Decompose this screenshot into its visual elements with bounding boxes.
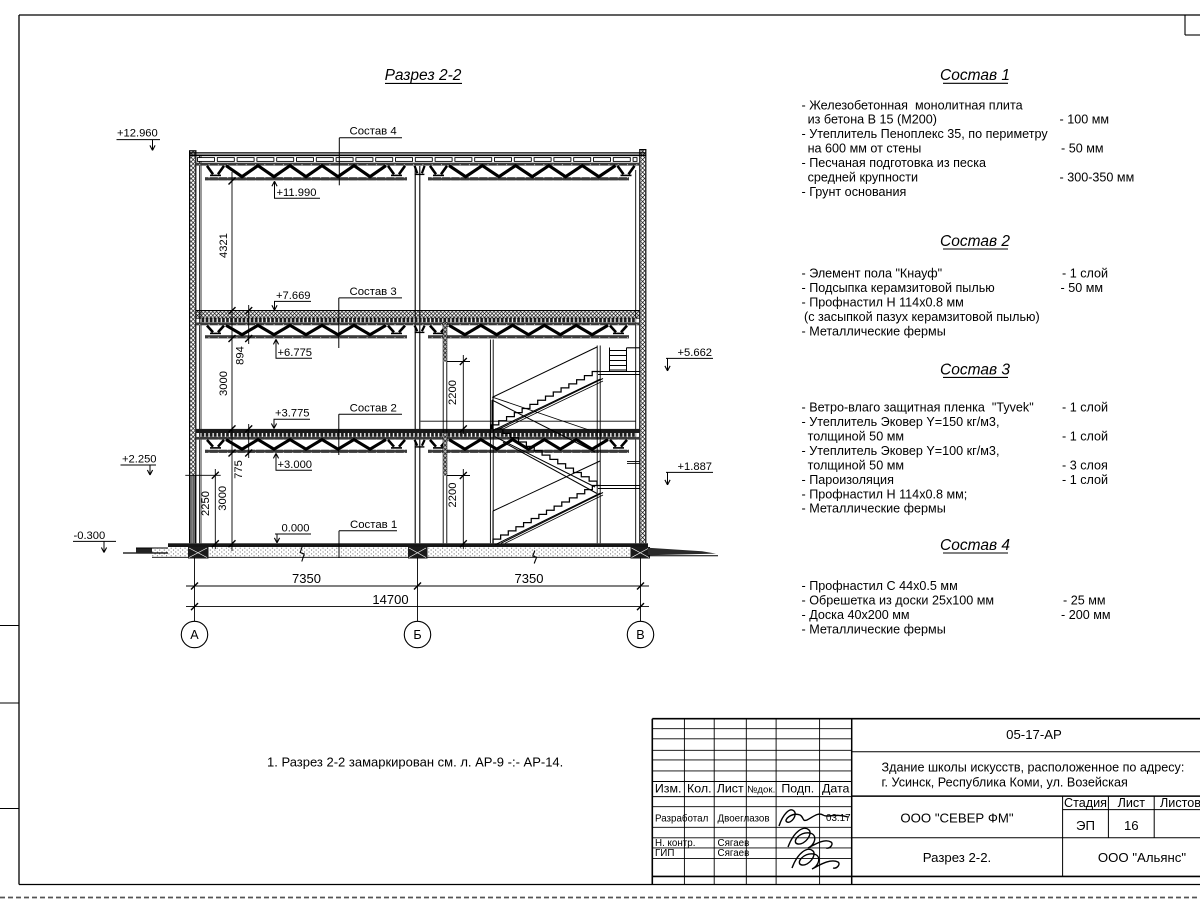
svg-text:- 50 мм: - 50 мм (1061, 281, 1104, 295)
svg-text:16: 16 (1124, 818, 1139, 833)
svg-text:14700: 14700 (372, 592, 408, 607)
svg-text:- Грунт основания: - Грунт основания (802, 185, 907, 199)
svg-text:+6.775: +6.775 (278, 347, 313, 359)
svg-text:- Профнастил С 44х0.5 мм: - Профнастил С 44х0.5 мм (802, 579, 958, 593)
svg-text:Стадия: Стадия (1064, 796, 1107, 810)
svg-text:- Песчаная подготовка из песка: - Песчаная подготовка из песка (802, 156, 987, 170)
svg-text:- 1 слой: - 1 слой (1062, 401, 1108, 415)
svg-text:- Металлические фермы: - Металлические фермы (802, 502, 946, 516)
svg-text:Разработал: Разработал (655, 813, 709, 824)
svg-text:толщиной 50 мм: толщиной 50 мм (808, 458, 904, 472)
svg-text:- 1 слой: - 1 слой (1062, 473, 1108, 487)
svg-text:- Железобетонная монолитная п: - Железобетонная монолитная плита (802, 98, 1023, 112)
svg-text:- Пароизоляция: - Пароизоляция (802, 473, 894, 487)
svg-text:894: 894 (235, 346, 247, 365)
svg-text:2200: 2200 (447, 380, 459, 405)
svg-text:Состав 4: Состав 4 (940, 537, 1010, 554)
svg-text:+11.990: +11.990 (277, 187, 317, 199)
svg-text:+12.960: +12.960 (117, 128, 158, 140)
svg-text:Двоеглазов: Двоеглазов (718, 813, 770, 824)
svg-text:Лист: Лист (717, 782, 744, 796)
svg-text:+1.887: +1.887 (678, 461, 713, 473)
svg-text:ООО "Альянс": ООО "Альянс" (1098, 850, 1186, 865)
svg-text:4321: 4321 (218, 233, 230, 258)
svg-text:+7.669: +7.669 (276, 290, 311, 302)
svg-text:Изм.: Изм. (655, 782, 682, 796)
svg-text:2250: 2250 (200, 491, 212, 516)
svg-text:- 300-350 мм: - 300-350 мм (1060, 171, 1135, 185)
svg-text:Сягаев: Сягаев (718, 838, 750, 849)
svg-text:Здание школы искусств, располо: Здание школы искусств, расположенное по … (882, 760, 1185, 774)
svg-text:- 200 мм: - 200 мм (1061, 608, 1111, 622)
svg-text:ГИП: ГИП (655, 848, 674, 859)
svg-text:(с засыпкой пазух керамзитовой: (с засыпкой пазух керамзитовой пылью) (804, 310, 1040, 324)
svg-text:- Утеплитель Эковер Y=150 кг/м: - Утеплитель Эковер Y=150 кг/м3, (802, 415, 1000, 429)
svg-text:- Профнастил Н 114х0.8 мм;: - Профнастил Н 114х0.8 мм; (802, 487, 968, 501)
svg-text:03.17: 03.17 (826, 813, 851, 824)
svg-text:- Ветро-влаго защитная пленка: - Ветро-влаго защитная пленка "Tyvek" (802, 401, 1034, 415)
svg-text:Состав 1: Состав 1 (350, 519, 397, 531)
svg-text:- Металлические фермы: - Металлические фермы (802, 324, 946, 338)
svg-text:- 1 слой: - 1 слой (1062, 430, 1108, 444)
svg-text:из бетона В 15 (М200): из бетона В 15 (М200) (808, 113, 937, 127)
svg-text:- Профнастил Н 114х0.8 мм: - Профнастил Н 114х0.8 мм (802, 296, 964, 310)
svg-text:на 600 мм от стены: на 600 мм от стены (808, 142, 922, 156)
svg-text:ЭП: ЭП (1076, 818, 1095, 833)
svg-text:+3.775: +3.775 (275, 407, 310, 419)
svg-text:- 25 мм: - 25 мм (1063, 593, 1106, 607)
svg-text:- 3 слоя: - 3 слоя (1062, 458, 1108, 472)
svg-text:- 50 мм: - 50 мм (1061, 142, 1104, 156)
svg-text:- Подсыпка керамзитовой пылью: - Подсыпка керамзитовой пылью (802, 281, 995, 295)
svg-text:- 1 слой: - 1 слой (1062, 267, 1108, 281)
svg-text:Б: Б (413, 628, 421, 642)
svg-text:- Доска 40х200 мм: - Доска 40х200 мм (802, 608, 910, 622)
svg-text:3000: 3000 (217, 486, 229, 511)
svg-text:Состав 3: Состав 3 (940, 361, 1010, 378)
svg-text:- Металлические фермы: - Металлические фермы (802, 622, 946, 636)
svg-text:3000: 3000 (218, 371, 230, 396)
svg-text:Разрез 2-2.: Разрез 2-2. (923, 850, 991, 865)
svg-text:Состав 2: Состав 2 (350, 403, 397, 415)
svg-text:В: В (636, 628, 644, 642)
svg-text:Дата: Дата (822, 782, 850, 796)
svg-text:А: А (190, 628, 199, 642)
svg-text:- 100 мм: - 100 мм (1060, 113, 1110, 127)
svg-text:- Элемент пола "Кнауф": - Элемент пола "Кнауф" (802, 267, 943, 281)
svg-text:7350: 7350 (292, 571, 321, 586)
svg-text:Листов: Листов (1160, 796, 1200, 810)
svg-text:Сягаев: Сягаев (718, 848, 750, 859)
svg-text:ООО "СЕВЕР ФМ": ООО "СЕВЕР ФМ" (900, 810, 1014, 825)
svg-text:1. Разрез 2-2 замаркирован см.: 1. Разрез 2-2 замаркирован см. л. АР-9 -… (267, 755, 563, 770)
svg-text:Состав 4: Состав 4 (350, 126, 397, 138)
svg-text:Лист: Лист (1118, 796, 1146, 810)
svg-text:-0.300: -0.300 (74, 530, 106, 542)
svg-text:2200: 2200 (447, 483, 459, 508)
svg-text:Состав 1: Состав 1 (940, 67, 1010, 84)
svg-text:Состав 2: Состав 2 (940, 233, 1010, 250)
svg-text:775: 775 (233, 460, 245, 479)
svg-text:Кол.: Кол. (687, 782, 712, 796)
svg-text:7350: 7350 (515, 571, 544, 586)
svg-text:+3.000: +3.000 (278, 459, 313, 471)
svg-text:Подп.: Подп. (781, 782, 814, 796)
svg-text:+5.662: +5.662 (678, 347, 713, 359)
svg-text:+2.250: +2.250 (122, 453, 157, 465)
svg-text:Н. контр.: Н. контр. (655, 838, 695, 849)
svg-text:05-17-АР: 05-17-АР (1006, 727, 1062, 742)
svg-text:толщиной 50 мм: толщиной 50 мм (808, 430, 904, 444)
svg-text:г. Усинск, Республика Коми, ул: г. Усинск, Республика Коми, ул. Возейска… (882, 776, 1128, 790)
svg-text:Состав 3: Состав 3 (350, 286, 397, 298)
svg-text:средней крупности: средней крупности (808, 171, 918, 185)
svg-text:- Утеплитель Пеноплекс 35, по: - Утеплитель Пеноплекс 35, по периметру (802, 127, 1049, 141)
svg-text:- Обрешетка из доски 25х100 мм: - Обрешетка из доски 25х100 мм (802, 593, 995, 607)
svg-text:- Утеплитель Эковер Y=100 кг/м: - Утеплитель Эковер Y=100 кг/м3, (802, 444, 1000, 458)
svg-text:№док.: №док. (747, 784, 775, 795)
svg-text:0.000: 0.000 (282, 523, 310, 535)
svg-text:Разрез 2-2: Разрез 2-2 (385, 67, 462, 84)
